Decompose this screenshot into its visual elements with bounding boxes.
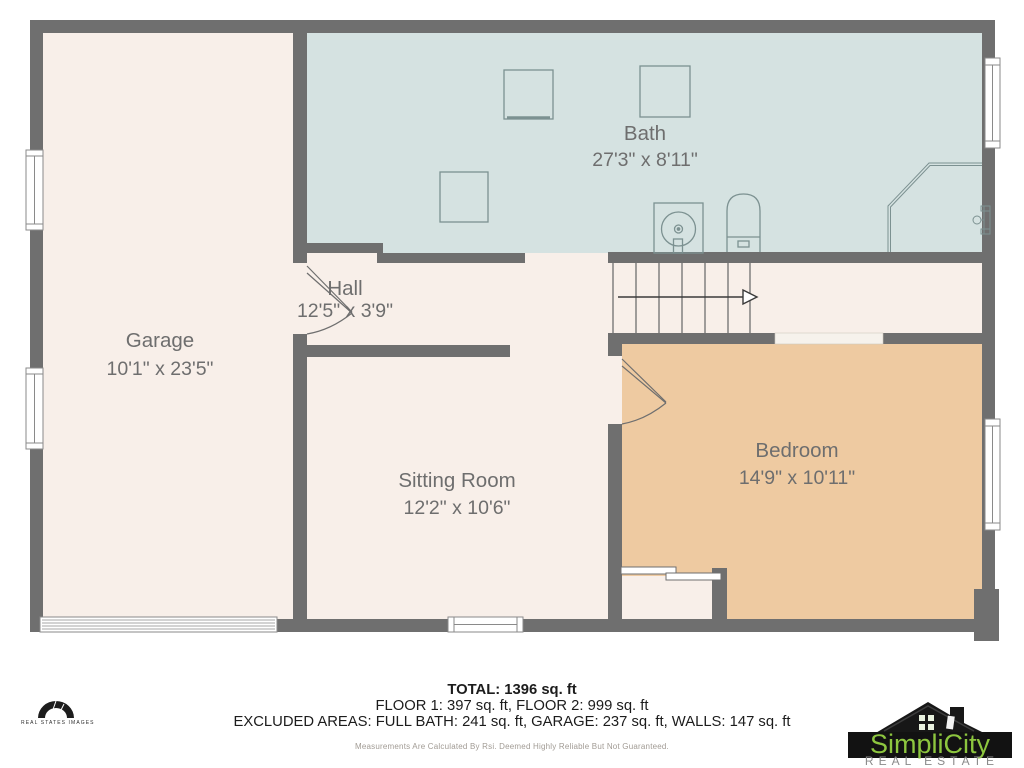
floor-plan-page: Garage 10'1" x 23'5" Bath 27'3" x 8'11" … [0,0,1024,768]
wall-bedroom-top-right [883,333,982,344]
window-garage-upper [26,150,43,230]
sitting-room-dims: 12'2" x 10'6" [404,497,511,519]
bath-label: Bath [624,122,666,145]
garage-door [40,617,277,632]
hall-door-opening [293,263,307,334]
logo-tagline-text: REAL ESTATE [865,754,999,766]
wall-corner-block [974,589,999,641]
wall-bath-bottom-a [293,243,383,253]
real-states-images-logo: REAL STATES IMAGES [18,699,94,733]
simplicity-logo-graphic: SimpliCity REAL ESTATE [846,698,1018,766]
window-bedroom [985,419,1000,530]
garage-label: Garage [126,329,194,352]
bath-dims: 27'3" x 8'11" [592,149,698,171]
wall-bath-bottom-b [377,253,525,263]
window-sitting-room [448,617,523,632]
bedroom-cased-opening [775,333,883,344]
garage-dims: 10'1" x 23'5" [107,358,214,380]
bedroom-label: Bedroom [755,439,838,462]
sitting-room-label: Sitting Room [398,469,515,492]
wall-left [30,20,43,632]
shutter-arc-icon [36,699,76,719]
total-area-text: TOTAL: 1396 sq. ft [0,683,1024,699]
wall-top [30,20,995,33]
left-logo-text-row: REAL STATES IMAGES [18,720,94,726]
closet-interior [622,576,712,619]
floor-plan: Garage 10'1" x 23'5" Bath 27'3" x 8'11" … [0,0,1024,680]
hall-dims: 12'5" x 3'9" [297,300,393,322]
wall-hall-bottom [307,345,510,357]
hall-label: Hall [327,277,362,300]
bedroom-dims: 14'9" x 10'11" [739,467,855,489]
window-garage-lower [26,368,43,449]
wall-bedroom-top-left [608,333,775,344]
simplicity-real-estate-logo: SimpliCity REAL ESTATE [846,698,1018,766]
window-bath [985,58,1000,148]
bedroom-door-opening [608,356,622,424]
left-logo-text: REAL STATES IMAGES [21,720,95,726]
